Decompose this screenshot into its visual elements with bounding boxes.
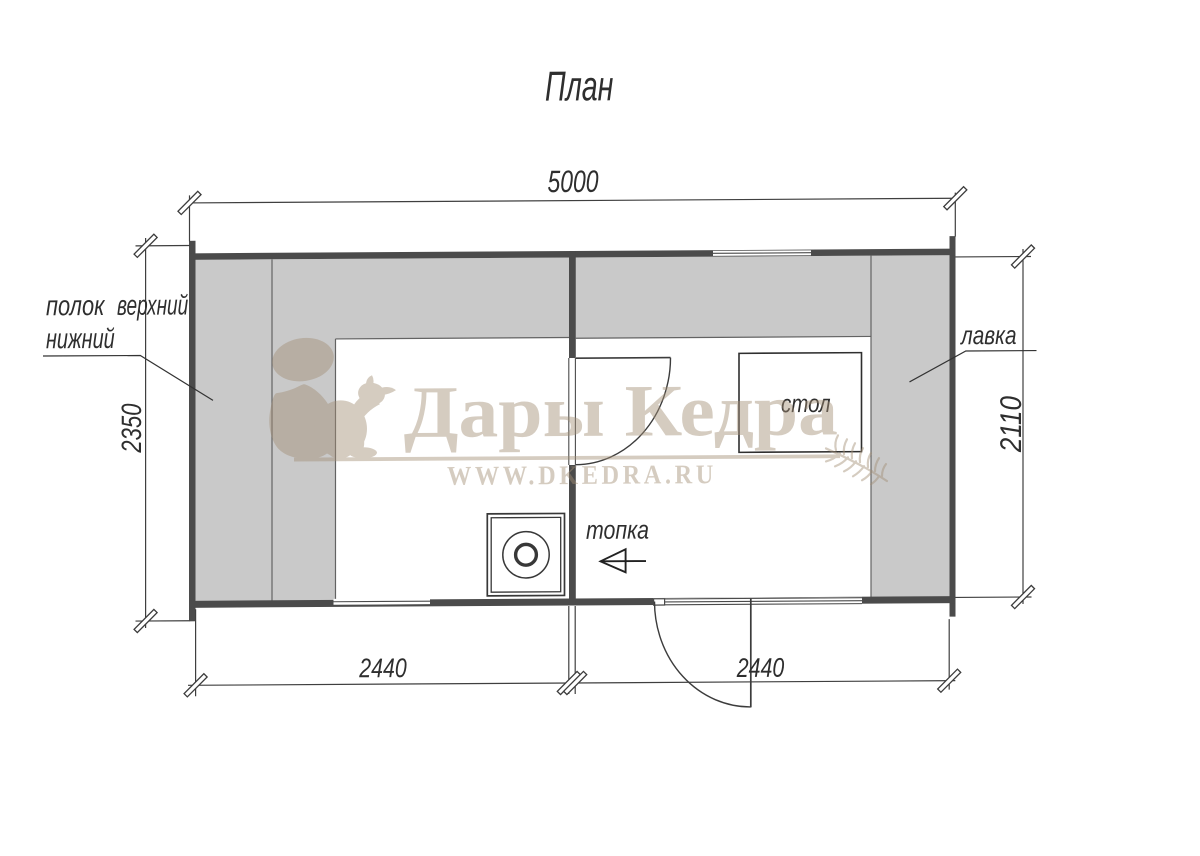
svg-text:WWW.DKEDRA.RU: WWW.DKEDRA.RU [447, 459, 717, 491]
svg-text:5000: 5000 [548, 163, 599, 199]
svg-text:2440: 2440 [736, 653, 785, 683]
svg-text:2110: 2110 [994, 396, 1027, 454]
svg-text:Дары Кедра: Дары Кедра [404, 369, 838, 453]
svg-text:топка: топка [586, 516, 649, 546]
svg-text:План: План [545, 62, 614, 110]
svg-text:лавка: лавка [959, 321, 1016, 350]
svg-text:нижний: нижний [46, 324, 115, 356]
svg-text:2440: 2440 [358, 654, 407, 684]
svg-text:2350: 2350 [117, 403, 148, 453]
svg-text:верхний: верхний [117, 290, 188, 322]
svg-text:полок: полок [46, 290, 105, 322]
